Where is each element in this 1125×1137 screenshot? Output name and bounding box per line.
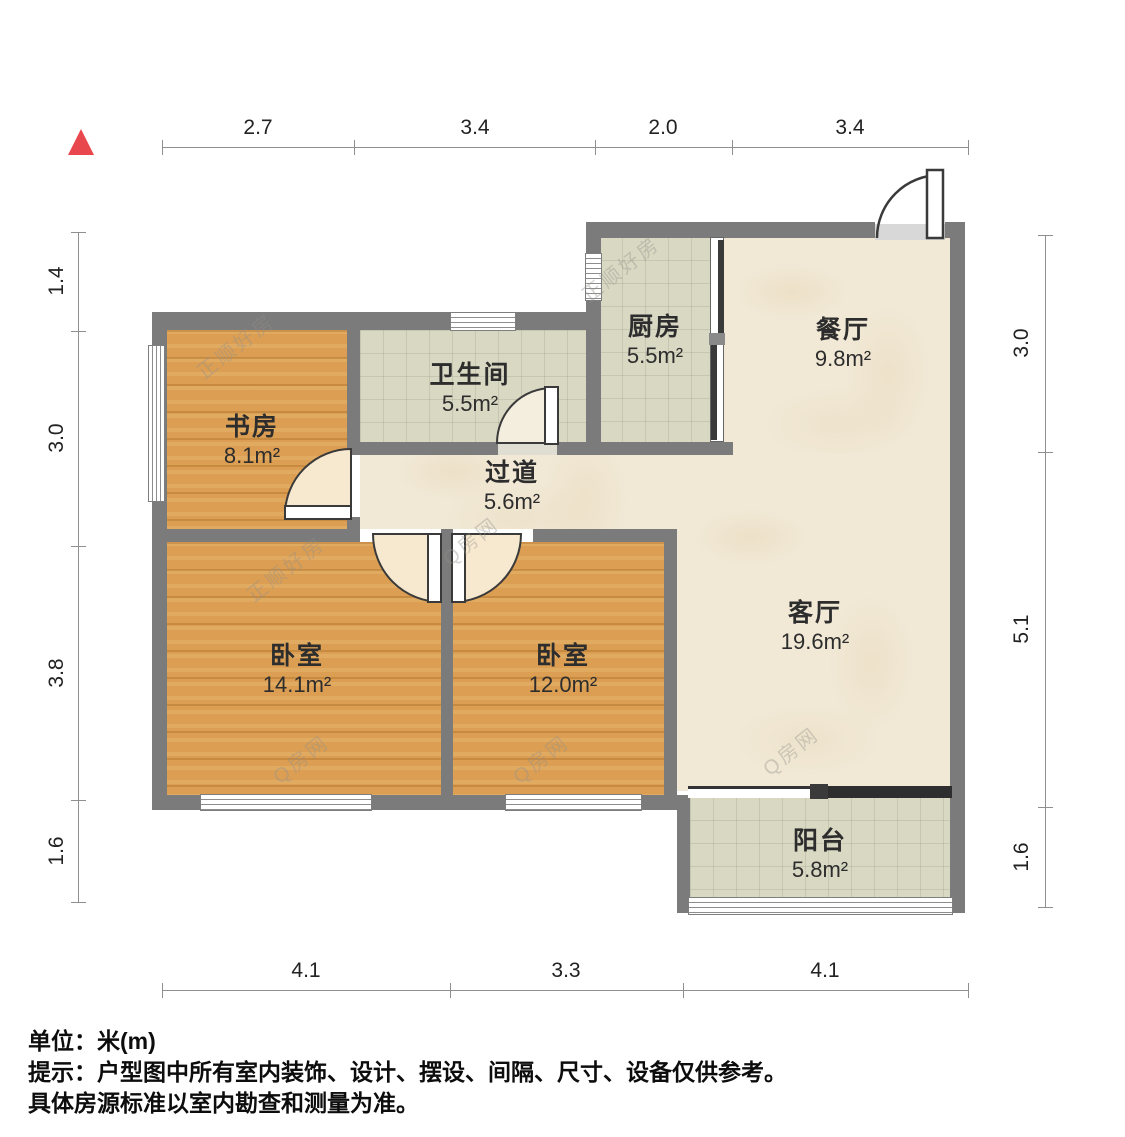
kitchen-sliding-door-panel [711, 345, 717, 440]
tick [71, 232, 86, 233]
dim-bottom-2: 3.3 [551, 959, 580, 983]
dimension-line-top [162, 147, 968, 148]
tick [1038, 452, 1053, 453]
room-label-bedroom-1: 卧室 14.1m² [263, 636, 331, 698]
kitchen-sliding-door-panel [718, 240, 724, 335]
footer-tip-line: 提示：户型图中所有室内装饰、设计、摆设、间隔、尺寸、设备仅供参考。 [28, 1057, 787, 1088]
tick [450, 983, 451, 998]
dim-top-4: 3.4 [835, 116, 864, 140]
tick [162, 140, 163, 155]
wall [664, 529, 677, 795]
room-label-dining: 餐厅 9.8m² [815, 310, 871, 372]
tick [71, 546, 86, 547]
dim-left-4: 1.6 [45, 836, 69, 865]
window-balcony-bottom [688, 897, 953, 915]
footer-tip-line-2: 具体房源标准以室内勘查和测量为准。 [28, 1088, 787, 1119]
dim-top-3: 2.0 [648, 116, 677, 140]
tick [1038, 807, 1053, 808]
dimension-line-bottom [162, 990, 968, 991]
window-bedroom-1 [200, 794, 372, 811]
dim-top-1: 2.7 [243, 116, 272, 140]
floor-plan: 正顺好房 正顺好房 正顺好房 Q房网 Q房网 Q房网 Q房网 书房 8.1m² … [0, 0, 1125, 1137]
dim-top-2: 3.4 [460, 116, 489, 140]
dim-bottom-1: 4.1 [291, 959, 320, 983]
dim-right-3: 1.6 [1010, 842, 1034, 871]
tick [71, 800, 86, 801]
room-label-balcony: 阳台 5.8m² [792, 821, 848, 883]
room-label-kitchen: 厨房 5.5m² [627, 307, 683, 369]
tick [71, 902, 86, 903]
tick [683, 983, 684, 998]
dim-left-3: 3.8 [45, 658, 69, 687]
footer-notes: 单位：米(m) 提示：户型图中所有室内装饰、设计、摆设、间隔、尺寸、设备仅供参考… [28, 1026, 787, 1119]
dim-left-1: 1.4 [45, 266, 69, 295]
tick [354, 140, 355, 155]
room-label-hallway: 过道 5.6m² [484, 453, 540, 515]
wall [347, 330, 360, 448]
room-label-bathroom: 卫生间 5.5m² [429, 355, 510, 417]
balcony-sliding-door-track [688, 789, 814, 798]
tick [732, 140, 733, 155]
dim-right-2: 5.1 [1010, 614, 1034, 643]
wall [950, 222, 965, 913]
balcony-sliding-door-stop [810, 784, 828, 799]
room-label-living: 客厅 19.6m² [781, 593, 849, 655]
balcony-sliding-door-panel [828, 786, 952, 798]
room-label-bedroom-2: 卧室 12.0m² [529, 636, 597, 698]
tick [968, 140, 969, 155]
tick [162, 983, 163, 998]
tick [71, 331, 86, 332]
tick [595, 140, 596, 155]
dim-right-1: 3.0 [1010, 328, 1034, 357]
window-kitchen-left [585, 253, 602, 301]
wall [677, 795, 690, 913]
dim-bottom-3: 4.1 [810, 959, 839, 983]
north-arrow-icon [68, 129, 94, 155]
tick [968, 983, 969, 998]
entry-door-sill [875, 224, 945, 240]
wall [441, 529, 453, 795]
room-label-study: 书房 8.1m² [224, 407, 280, 469]
wall [586, 222, 875, 238]
tick [1038, 907, 1053, 908]
wall [586, 330, 601, 455]
dim-left-2: 3.0 [45, 423, 69, 452]
window-study-left [148, 345, 165, 502]
kitchen-sliding-door-stop [709, 333, 725, 345]
tick [1038, 235, 1053, 236]
wall [152, 529, 360, 542]
window-bedroom-2 [505, 794, 642, 811]
footer-unit-line: 单位：米(m) [28, 1026, 787, 1057]
dimension-line-left [78, 232, 79, 902]
wall [347, 442, 498, 455]
wall [152, 312, 600, 330]
wall [533, 529, 677, 542]
wall [601, 442, 733, 455]
window-bathroom-top [450, 312, 516, 331]
